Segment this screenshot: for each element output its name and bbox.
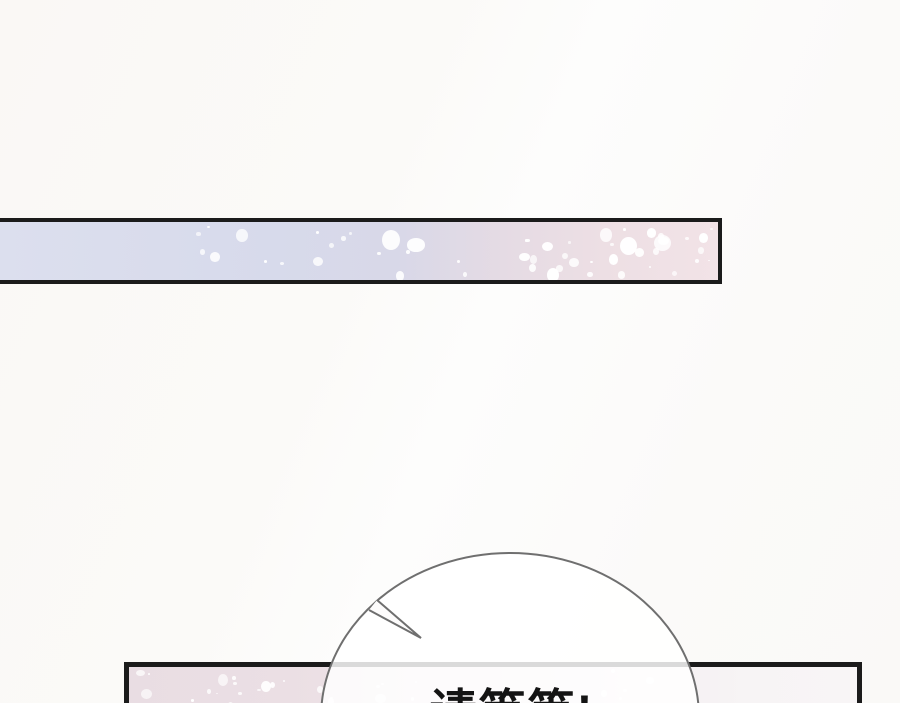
sparkle-dot (270, 682, 275, 688)
sparkle-dot (647, 228, 656, 237)
sparkle-dot (698, 247, 704, 253)
sparkle-dot (635, 248, 644, 257)
sparkle-dot (341, 236, 346, 240)
sparkle-dot (620, 237, 637, 255)
sparkle-dot (600, 228, 612, 241)
sparkle-dot (590, 261, 593, 263)
sparkle-dot (329, 243, 334, 248)
sparkle-dot (382, 230, 400, 250)
sparkle-dot (207, 226, 210, 229)
sparkle-dot (257, 689, 261, 692)
sparkle-dot (218, 674, 228, 686)
sparkle-dot (238, 692, 242, 695)
sparkle-dot (618, 271, 626, 279)
sparkle-dot (547, 268, 559, 282)
sparkle-dot (623, 228, 626, 231)
sparkle-dot (530, 255, 537, 264)
sparkle-dot (685, 237, 689, 241)
sparkle-dot (569, 258, 578, 267)
sparkle-dot (699, 233, 708, 243)
sparkle-dot (649, 266, 651, 268)
sparkle-dot (210, 252, 220, 262)
sparkle-dot (562, 253, 568, 260)
sparkle-dot (261, 681, 271, 692)
speech-bubble-tail (369, 600, 421, 638)
sparkle-dot (609, 254, 618, 264)
sparkle-dot (463, 272, 468, 277)
sparkle-dot (264, 260, 267, 263)
sparkle-dot (624, 251, 627, 253)
sparkle-dot (407, 238, 425, 251)
sparkle-dot (200, 249, 205, 255)
sparkle-dot (519, 253, 530, 262)
sparkle-dot (654, 235, 671, 251)
sparkle-dot (141, 689, 152, 699)
sparkle-dot (316, 231, 319, 234)
top-gradient-panel (0, 218, 722, 284)
sparkle-dot (658, 237, 669, 245)
sparkle-dot (542, 242, 553, 251)
sparkle-dot (708, 260, 710, 261)
sparkle-dot (525, 239, 529, 243)
sparkle-dot (658, 233, 664, 239)
sparkle-dot (529, 264, 536, 272)
sparkle-dot (457, 260, 460, 263)
sparkle-dot (233, 682, 237, 686)
sparkle-dot (196, 232, 201, 236)
sparkle-dot (710, 228, 712, 230)
sparkle-dot (216, 693, 218, 695)
sparkle-dot (349, 232, 352, 235)
speech-bubble (0, 0, 900, 703)
sparkle-dot (328, 698, 334, 703)
sparkle-dot (191, 699, 195, 702)
speech-text: 请等等! (362, 673, 662, 703)
sparkle-dot (610, 243, 614, 247)
sparkle-dot (207, 689, 212, 694)
sparkle-dot (653, 248, 659, 255)
sparkle-dot (396, 271, 404, 280)
sparkle-dot (148, 673, 150, 675)
sparkle-dot (568, 241, 571, 243)
sparkle-dot (377, 252, 381, 256)
sparkle-dot (283, 680, 285, 682)
sparkle-dot (330, 697, 333, 699)
sparkle-dot (525, 239, 528, 242)
sparkle-dot (556, 265, 563, 272)
sparkle-dot (672, 271, 677, 276)
sparkle-dot (232, 676, 236, 680)
sparkle-dot (317, 686, 323, 693)
comic-page: 请等等! (0, 0, 900, 703)
sparkle-dot (313, 257, 323, 266)
sparkle-dot (587, 272, 592, 277)
sparkle-dot (136, 670, 145, 677)
sparkle-dot (280, 262, 284, 265)
sparkle-dot (236, 229, 247, 242)
sparkle-dot (406, 250, 410, 254)
sparkle-dot (695, 259, 699, 263)
